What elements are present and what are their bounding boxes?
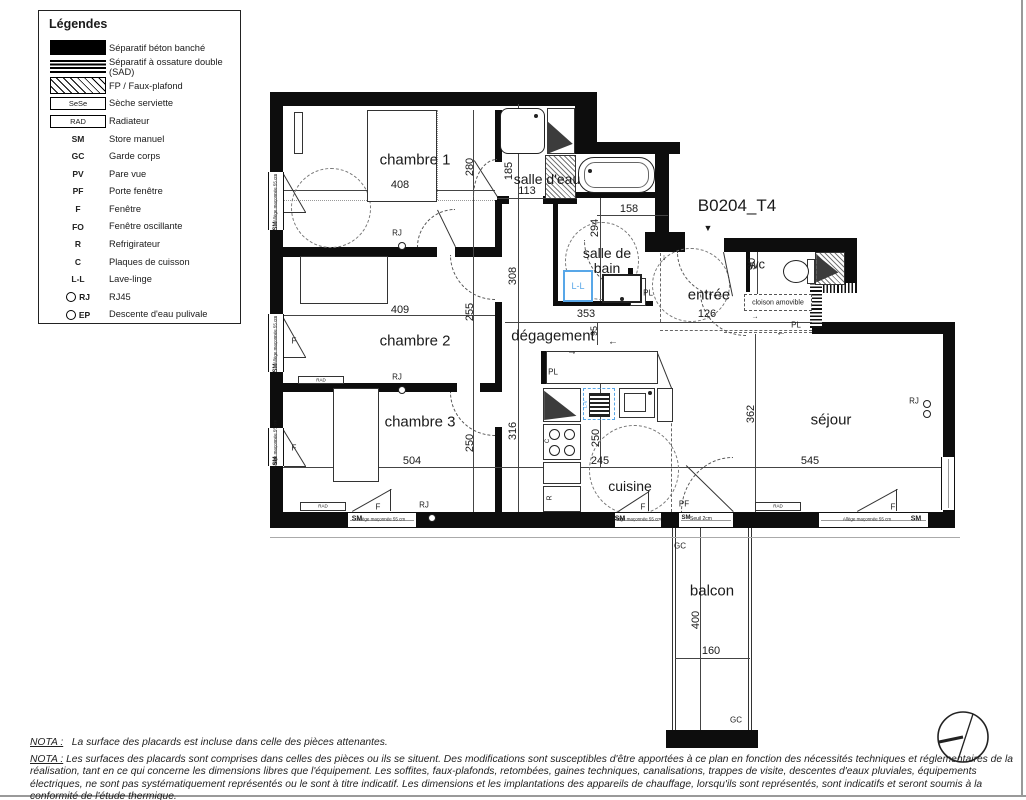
label-salle_eau_w: 113 bbox=[518, 185, 536, 197]
rj45-outlet bbox=[923, 400, 931, 408]
bathtub-inner bbox=[584, 162, 649, 188]
label-chambre2_w: 409 bbox=[391, 304, 409, 316]
toilet-bowl bbox=[783, 260, 809, 283]
fixture-box bbox=[657, 388, 673, 422]
wall-segment bbox=[495, 302, 502, 383]
label-pl: PL bbox=[548, 368, 558, 377]
label-bain_h: 294 bbox=[589, 219, 601, 237]
door-leaf-line bbox=[352, 489, 391, 512]
wall-segment bbox=[270, 466, 283, 528]
nota-1: NOTA : La surface des placards est inclu… bbox=[30, 737, 1018, 750]
door-leaf-line bbox=[284, 466, 306, 467]
label-couloir_h: 316 bbox=[507, 422, 519, 440]
nota-1-text: La surface des placards est incluse dans… bbox=[72, 737, 388, 748]
cooktop-burner bbox=[549, 445, 560, 456]
label-balcon: balcon bbox=[690, 583, 734, 600]
window-glass-line bbox=[948, 459, 949, 508]
label-rj: RJ bbox=[419, 501, 429, 510]
shower-tray bbox=[500, 108, 545, 154]
fixture-box bbox=[624, 393, 646, 412]
nota-2-text: Les surfaces des placards sont comprises… bbox=[30, 754, 1013, 800]
door-leaf-line bbox=[284, 357, 306, 358]
label-balcon_w: 160 bbox=[702, 645, 720, 657]
label-salle_bain: salle de bain bbox=[574, 246, 640, 276]
path-arrow-icon: → bbox=[567, 347, 577, 358]
label-cuisine: cuisine bbox=[608, 478, 652, 494]
label-r: R bbox=[547, 495, 554, 500]
label-rj: RJ bbox=[392, 373, 402, 382]
wall-segment bbox=[270, 92, 283, 172]
dimension-line bbox=[505, 322, 812, 323]
label-gc: GC bbox=[730, 716, 742, 725]
cooktop-burner bbox=[564, 429, 575, 440]
rj45-outlet bbox=[398, 242, 406, 250]
label-allege: Allège maçonnée 55 cm bbox=[613, 517, 661, 522]
label-allege: Allège maçonnée 55 cm bbox=[843, 517, 891, 522]
floorplan-drawing: chambre 1chambre 2chambre 3salle d'eausa… bbox=[0, 0, 1026, 800]
label-bain_w: 158 bbox=[620, 203, 638, 215]
label-degagement: dégagement bbox=[511, 328, 594, 345]
wall-segment bbox=[661, 512, 679, 528]
dimension-line bbox=[675, 658, 750, 659]
label-pl: PL bbox=[643, 289, 653, 298]
label-entree_w: 126 bbox=[698, 308, 716, 320]
removable-partition-label: cloison amovible bbox=[752, 300, 804, 307]
label-cuisine_w: 245 bbox=[591, 455, 609, 467]
label-rj: RJ bbox=[392, 229, 402, 238]
path-arrow-icon: → bbox=[752, 314, 759, 321]
label-chambre2: chambre 2 bbox=[380, 333, 451, 350]
label-rad: RAD bbox=[773, 504, 783, 509]
label-allege: Allège maçonnée 55 cm bbox=[357, 517, 405, 522]
dishwasher-front bbox=[589, 393, 610, 417]
page-border-right bbox=[1021, 0, 1023, 796]
label-cuisine_h: 250 bbox=[590, 429, 602, 447]
rj45-outlet bbox=[398, 386, 406, 394]
wall-segment bbox=[844, 238, 857, 288]
wall-segment bbox=[495, 200, 502, 247]
label-deg_h: 308 bbox=[507, 267, 519, 285]
door-swing-arc bbox=[450, 255, 495, 300]
nota-2: NOTA : Les surfaces des placards sont co… bbox=[30, 754, 1018, 800]
label-chambre2_h: 255 bbox=[464, 303, 476, 321]
entrance-pointer-icon: ▼ bbox=[704, 223, 713, 233]
label-deg_w: 353 bbox=[577, 308, 595, 320]
label-f: F bbox=[292, 337, 297, 346]
path-arrow-icon: ← bbox=[608, 337, 618, 348]
door-leaf-line bbox=[648, 491, 649, 511]
label-gc: GC bbox=[674, 542, 686, 551]
label-sm: SM bbox=[273, 364, 279, 373]
wall-segment bbox=[480, 383, 502, 392]
dimension-line bbox=[597, 215, 668, 216]
washing-machine-label: L-L bbox=[571, 281, 584, 291]
label-entree: entrée bbox=[688, 287, 731, 304]
label-wc_h: 90 bbox=[746, 258, 758, 270]
label-chambre1: chambre 1 bbox=[380, 152, 451, 169]
door-swing-arc bbox=[417, 209, 455, 247]
cooktop-burner bbox=[564, 445, 575, 456]
label-rad: RAD bbox=[316, 378, 326, 383]
label-chambre1_h: 280 bbox=[464, 158, 476, 176]
fixture-box bbox=[300, 256, 388, 304]
rj45-outlet bbox=[923, 410, 931, 418]
label-seuil: Seuil 2cm bbox=[690, 516, 712, 522]
wall-segment bbox=[655, 142, 669, 240]
label-rj: RJ bbox=[909, 397, 919, 406]
wall-segment bbox=[812, 322, 955, 334]
floorplan-page: Légendes Séparatif béton banchéSéparatif… bbox=[0, 0, 1026, 800]
label-chambre3_w: 504 bbox=[403, 455, 421, 467]
label-salle_eau_h: 185 bbox=[503, 162, 515, 180]
fixture-box bbox=[294, 112, 303, 154]
wall-segment bbox=[943, 322, 955, 457]
door-leaf-line bbox=[284, 212, 306, 213]
label-f: F bbox=[641, 503, 646, 512]
label-chambre1_w: 408 bbox=[391, 179, 409, 191]
label-allege: Allège maçonnée 55 cm bbox=[273, 316, 278, 364]
label-allege: Allège maçonnée 55 cm bbox=[273, 420, 278, 468]
wall-segment bbox=[270, 92, 577, 106]
wall-segment bbox=[270, 230, 283, 314]
door-leaf-line bbox=[390, 489, 391, 511]
label-pf: PF bbox=[679, 500, 689, 509]
wall-segment bbox=[928, 512, 955, 528]
label-chambre3: chambre 3 bbox=[385, 414, 456, 431]
fixture-box bbox=[543, 462, 581, 484]
notes-section: NOTA : La surface des placards est inclu… bbox=[30, 737, 1018, 800]
path-arrow-icon: ↓ bbox=[662, 252, 667, 262]
wall-segment bbox=[553, 204, 558, 306]
label-f: F bbox=[891, 503, 896, 512]
door-swing-arc bbox=[450, 392, 495, 436]
wall-segment bbox=[416, 512, 615, 528]
balcony-railing bbox=[672, 528, 676, 730]
label-c: C bbox=[545, 439, 551, 443]
facade-line bbox=[270, 537, 960, 538]
label-pl: PL bbox=[791, 321, 801, 330]
door-leaf-line bbox=[657, 353, 672, 388]
label-sejour_h: 362 bbox=[745, 405, 757, 423]
fixture-box bbox=[546, 351, 658, 384]
rj45-outlet bbox=[428, 514, 436, 522]
label-f: F bbox=[292, 444, 297, 453]
label-sm: SM bbox=[273, 222, 279, 231]
balcony-railing bbox=[748, 528, 752, 730]
fixture-box bbox=[333, 388, 379, 482]
label-sm: SM bbox=[911, 516, 922, 523]
label-balcon_h: 400 bbox=[690, 611, 702, 629]
door-leaf-line bbox=[896, 489, 897, 511]
label-chambre3_h: 250 bbox=[464, 434, 476, 452]
label-sejour_w: 545 bbox=[801, 455, 819, 467]
label-deg_s: 95 bbox=[589, 326, 599, 336]
nota-1-label: NOTA : bbox=[30, 737, 63, 748]
label-f: F bbox=[376, 503, 381, 512]
label-sejour: séjour bbox=[811, 412, 852, 429]
nota-2-label: NOTA : bbox=[30, 754, 63, 765]
label-rad: RAD bbox=[318, 504, 328, 509]
path-arrow-icon: ← bbox=[776, 328, 786, 339]
wall-segment bbox=[724, 238, 856, 252]
wall-segment bbox=[495, 427, 502, 512]
wall-segment bbox=[733, 512, 819, 528]
unit-title: B0204_T4 bbox=[698, 196, 776, 216]
label-allege: Allège maçonnée 55 cm bbox=[273, 174, 278, 222]
dishwasher-label: L-V bbox=[583, 400, 589, 408]
dimension-line bbox=[518, 104, 519, 512]
